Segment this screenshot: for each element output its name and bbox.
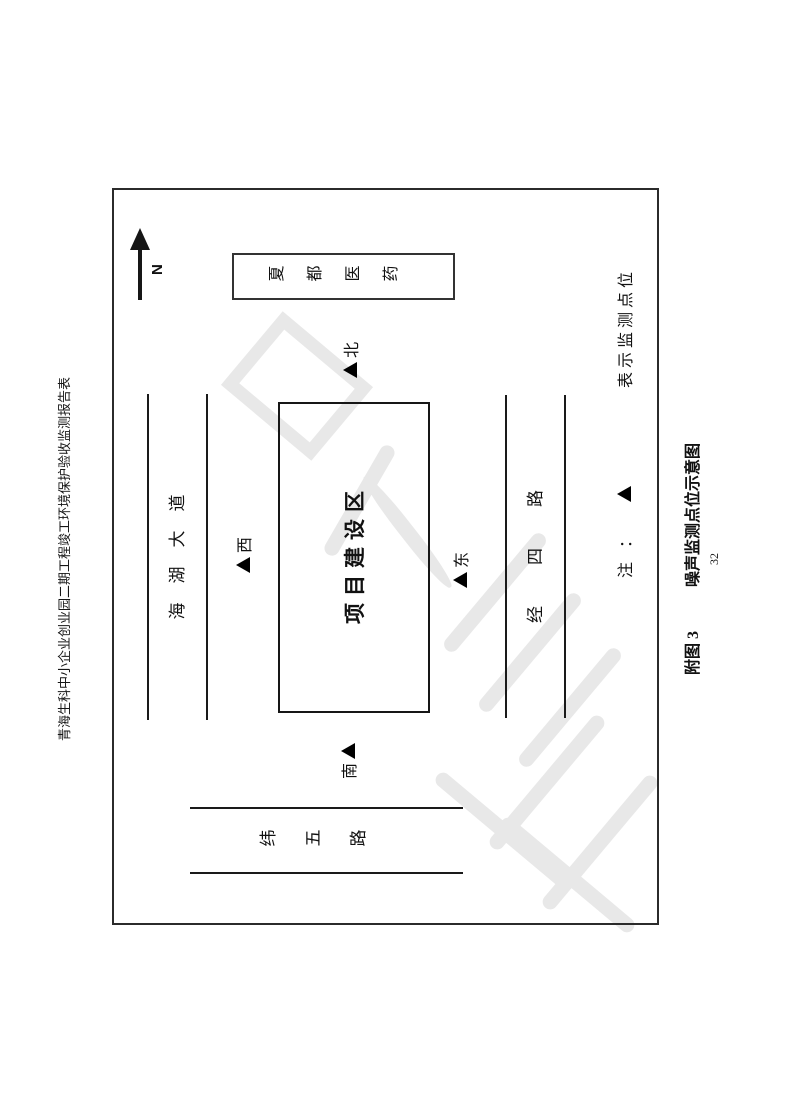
figure-caption-number: 附图 3 — [685, 631, 702, 675]
triangle-marker-icon — [236, 557, 250, 573]
road-label-weiwu-road: 纬五路 — [190, 808, 463, 872]
road-line — [190, 872, 463, 874]
triangle-marker-icon — [343, 362, 357, 378]
road-line — [564, 395, 566, 718]
monitoring-point-west: 西 — [231, 537, 255, 573]
road-label-haihu-avenue: 海湖大道 — [163, 394, 188, 720]
road-line — [505, 395, 507, 718]
north-arrow-head-icon — [130, 228, 150, 250]
legend-note-text: 表示监测点位 — [612, 268, 636, 388]
legend-note: 注： 表示监测点位 — [612, 268, 636, 578]
document-header-title: 青海生科中小企业创业园二期工程竣工环境保护验收监测报告表 — [54, 0, 73, 1118]
monitoring-point-label: 西 — [231, 537, 255, 553]
north-arrow-icon — [138, 248, 142, 300]
monitoring-point-south: 南 — [336, 743, 360, 779]
project-site-label: 项目建设区 — [339, 484, 369, 631]
monitoring-point-label: 东 — [448, 552, 472, 568]
road-line — [147, 394, 149, 720]
monitoring-point-label: 北 — [338, 342, 362, 358]
monitoring-point-north: 北 — [338, 342, 362, 378]
project-site-box: 项目建设区 — [278, 402, 430, 713]
building-box: 夏都医药 — [232, 253, 455, 300]
figure-caption: 附图 3 噪声监测点位示意图 — [679, 0, 703, 1118]
legend-note-prefix: 注： — [612, 518, 636, 578]
north-label: N — [149, 264, 166, 275]
document-page: 青海生科中小企业创业园二期工程竣工环境保护验收监测报告表 N 夏都医药 项目建设… — [0, 0, 789, 1118]
page-number: 32 — [707, 0, 722, 1118]
rotated-landscape-sheet: 青海生科中小企业创业园二期工程竣工环境保护验收监测报告表 N 夏都医药 项目建设… — [0, 0, 789, 1118]
monitoring-point-east: 东 — [448, 552, 472, 588]
triangle-marker-icon — [617, 486, 631, 502]
triangle-marker-icon — [341, 743, 355, 759]
figure-caption-title: 噪声监测点位示意图 — [685, 443, 702, 587]
monitoring-point-label: 南 — [336, 763, 360, 779]
road-label-jingsi-road: 经四路 — [521, 395, 546, 718]
road-line — [206, 394, 208, 720]
building-label: 夏都医药 — [268, 265, 420, 289]
triangle-marker-icon — [453, 572, 467, 588]
